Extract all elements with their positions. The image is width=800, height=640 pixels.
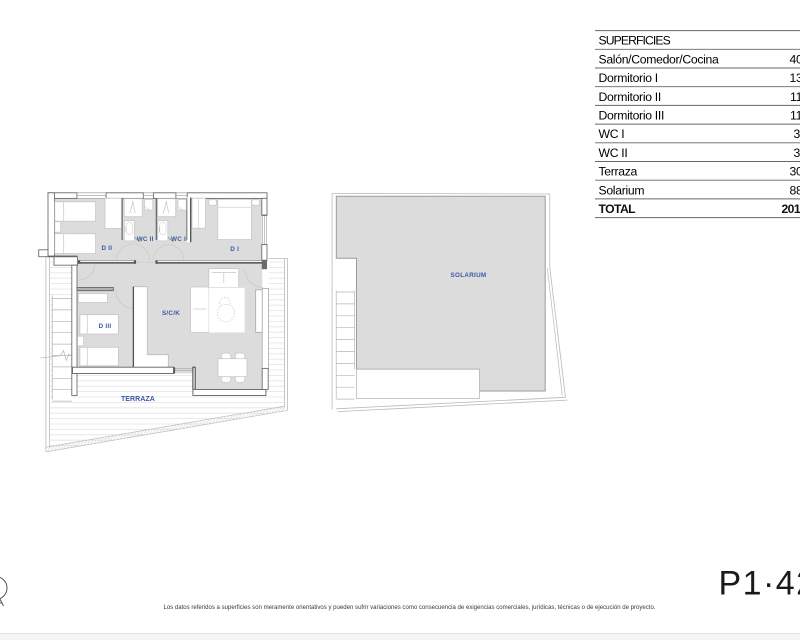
- svg-text:Dormitorio I: Dormitorio I: [599, 71, 658, 85]
- svg-text:30,55: 30,55: [790, 165, 800, 179]
- svg-text:SOLARIUM: SOLARIUM: [451, 272, 487, 279]
- svg-text:D III: D III: [99, 323, 112, 330]
- svg-text:S/C/K: S/C/K: [162, 310, 180, 317]
- svg-text:88,20: 88,20: [790, 183, 800, 197]
- svg-text:D II: D II: [102, 245, 113, 252]
- svg-text:11,60: 11,60: [790, 90, 800, 104]
- svg-text:D I: D I: [230, 246, 239, 253]
- svg-text:WC II: WC II: [137, 236, 154, 243]
- svg-text:P1·42B: P1·42B: [719, 565, 800, 603]
- svg-text:Terraza: Terraza: [599, 165, 638, 179]
- svg-text:TERRAZA: TERRAZA: [121, 395, 155, 403]
- svg-text:WC I: WC I: [171, 236, 186, 243]
- svg-text:13,35: 13,35: [790, 71, 800, 85]
- svg-text:201,15: 201,15: [782, 202, 800, 216]
- svg-text:3,45: 3,45: [794, 146, 800, 160]
- svg-text:TOTAL: TOTAL: [599, 202, 637, 216]
- svg-text:Solarium: Solarium: [599, 183, 645, 197]
- svg-text:Dormitorio III: Dormitorio III: [599, 109, 665, 123]
- svg-text:40,35: 40,35: [790, 52, 800, 66]
- svg-text:Salón/Comedor/Cocina: Salón/Comedor/Cocina: [599, 52, 720, 66]
- svg-text:SUPERFICIES: SUPERFICIES: [599, 34, 671, 48]
- svg-text:11,20: 11,20: [790, 109, 800, 123]
- svg-text:Dormitorio II: Dormitorio II: [599, 90, 661, 104]
- svg-text:WC II: WC II: [599, 146, 628, 160]
- svg-text:Los datos referidos a superfic: Los datos referidos a superficies son me…: [163, 605, 655, 611]
- svg-text:3,60: 3,60: [794, 127, 800, 141]
- svg-text:WC I: WC I: [599, 127, 625, 141]
